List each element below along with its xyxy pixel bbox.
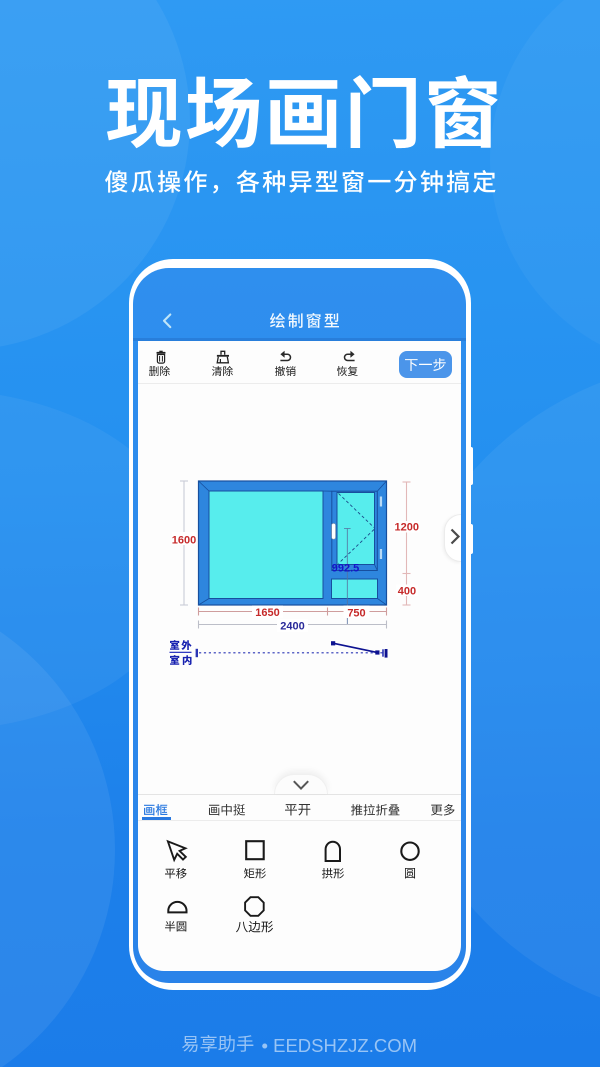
svg-text:750: 750 — [347, 608, 365, 620]
svg-text:400: 400 — [398, 585, 416, 597]
svg-text:1650: 1650 — [255, 607, 279, 619]
svg-text:2400: 2400 — [280, 621, 304, 633]
svg-text:1600: 1600 — [172, 534, 196, 546]
svg-text:992.5: 992.5 — [332, 562, 360, 574]
svg-text:1200: 1200 — [395, 522, 419, 534]
